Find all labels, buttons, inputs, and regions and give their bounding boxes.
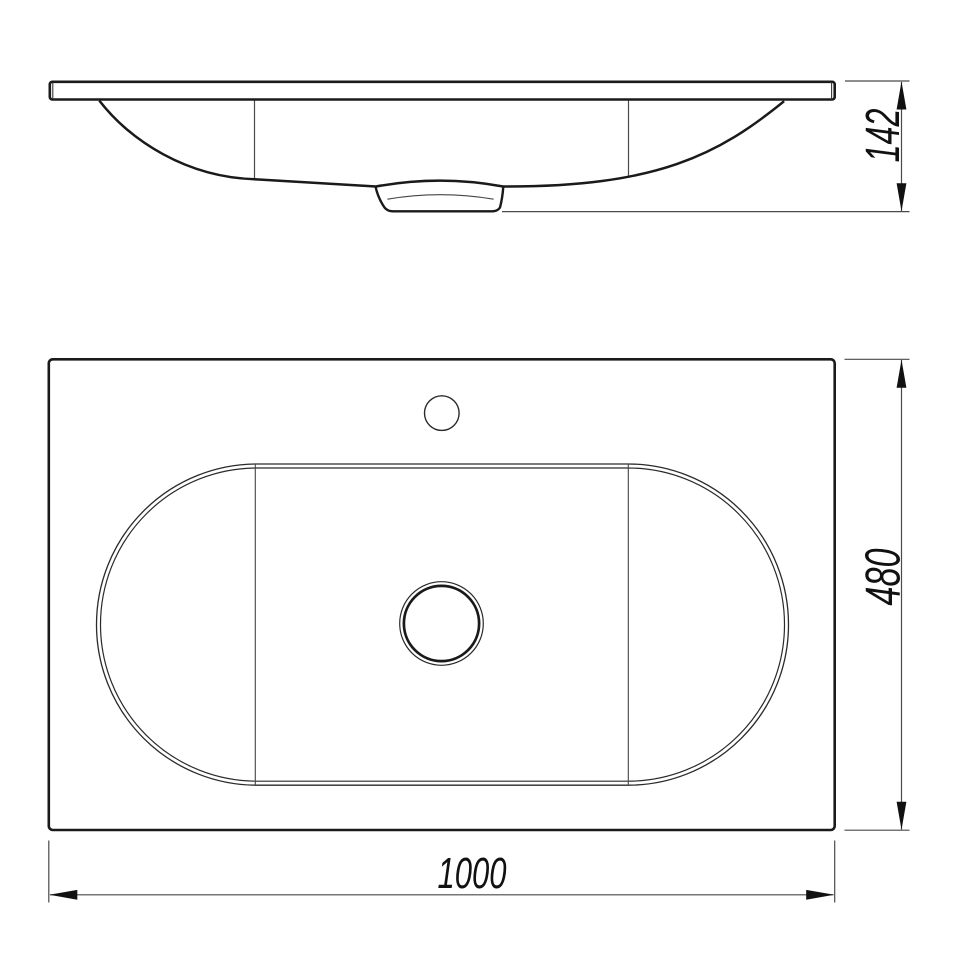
svg-text:1000: 1000 <box>438 850 507 899</box>
svg-text:480: 480 <box>855 548 909 606</box>
svg-text:142: 142 <box>856 108 910 162</box>
